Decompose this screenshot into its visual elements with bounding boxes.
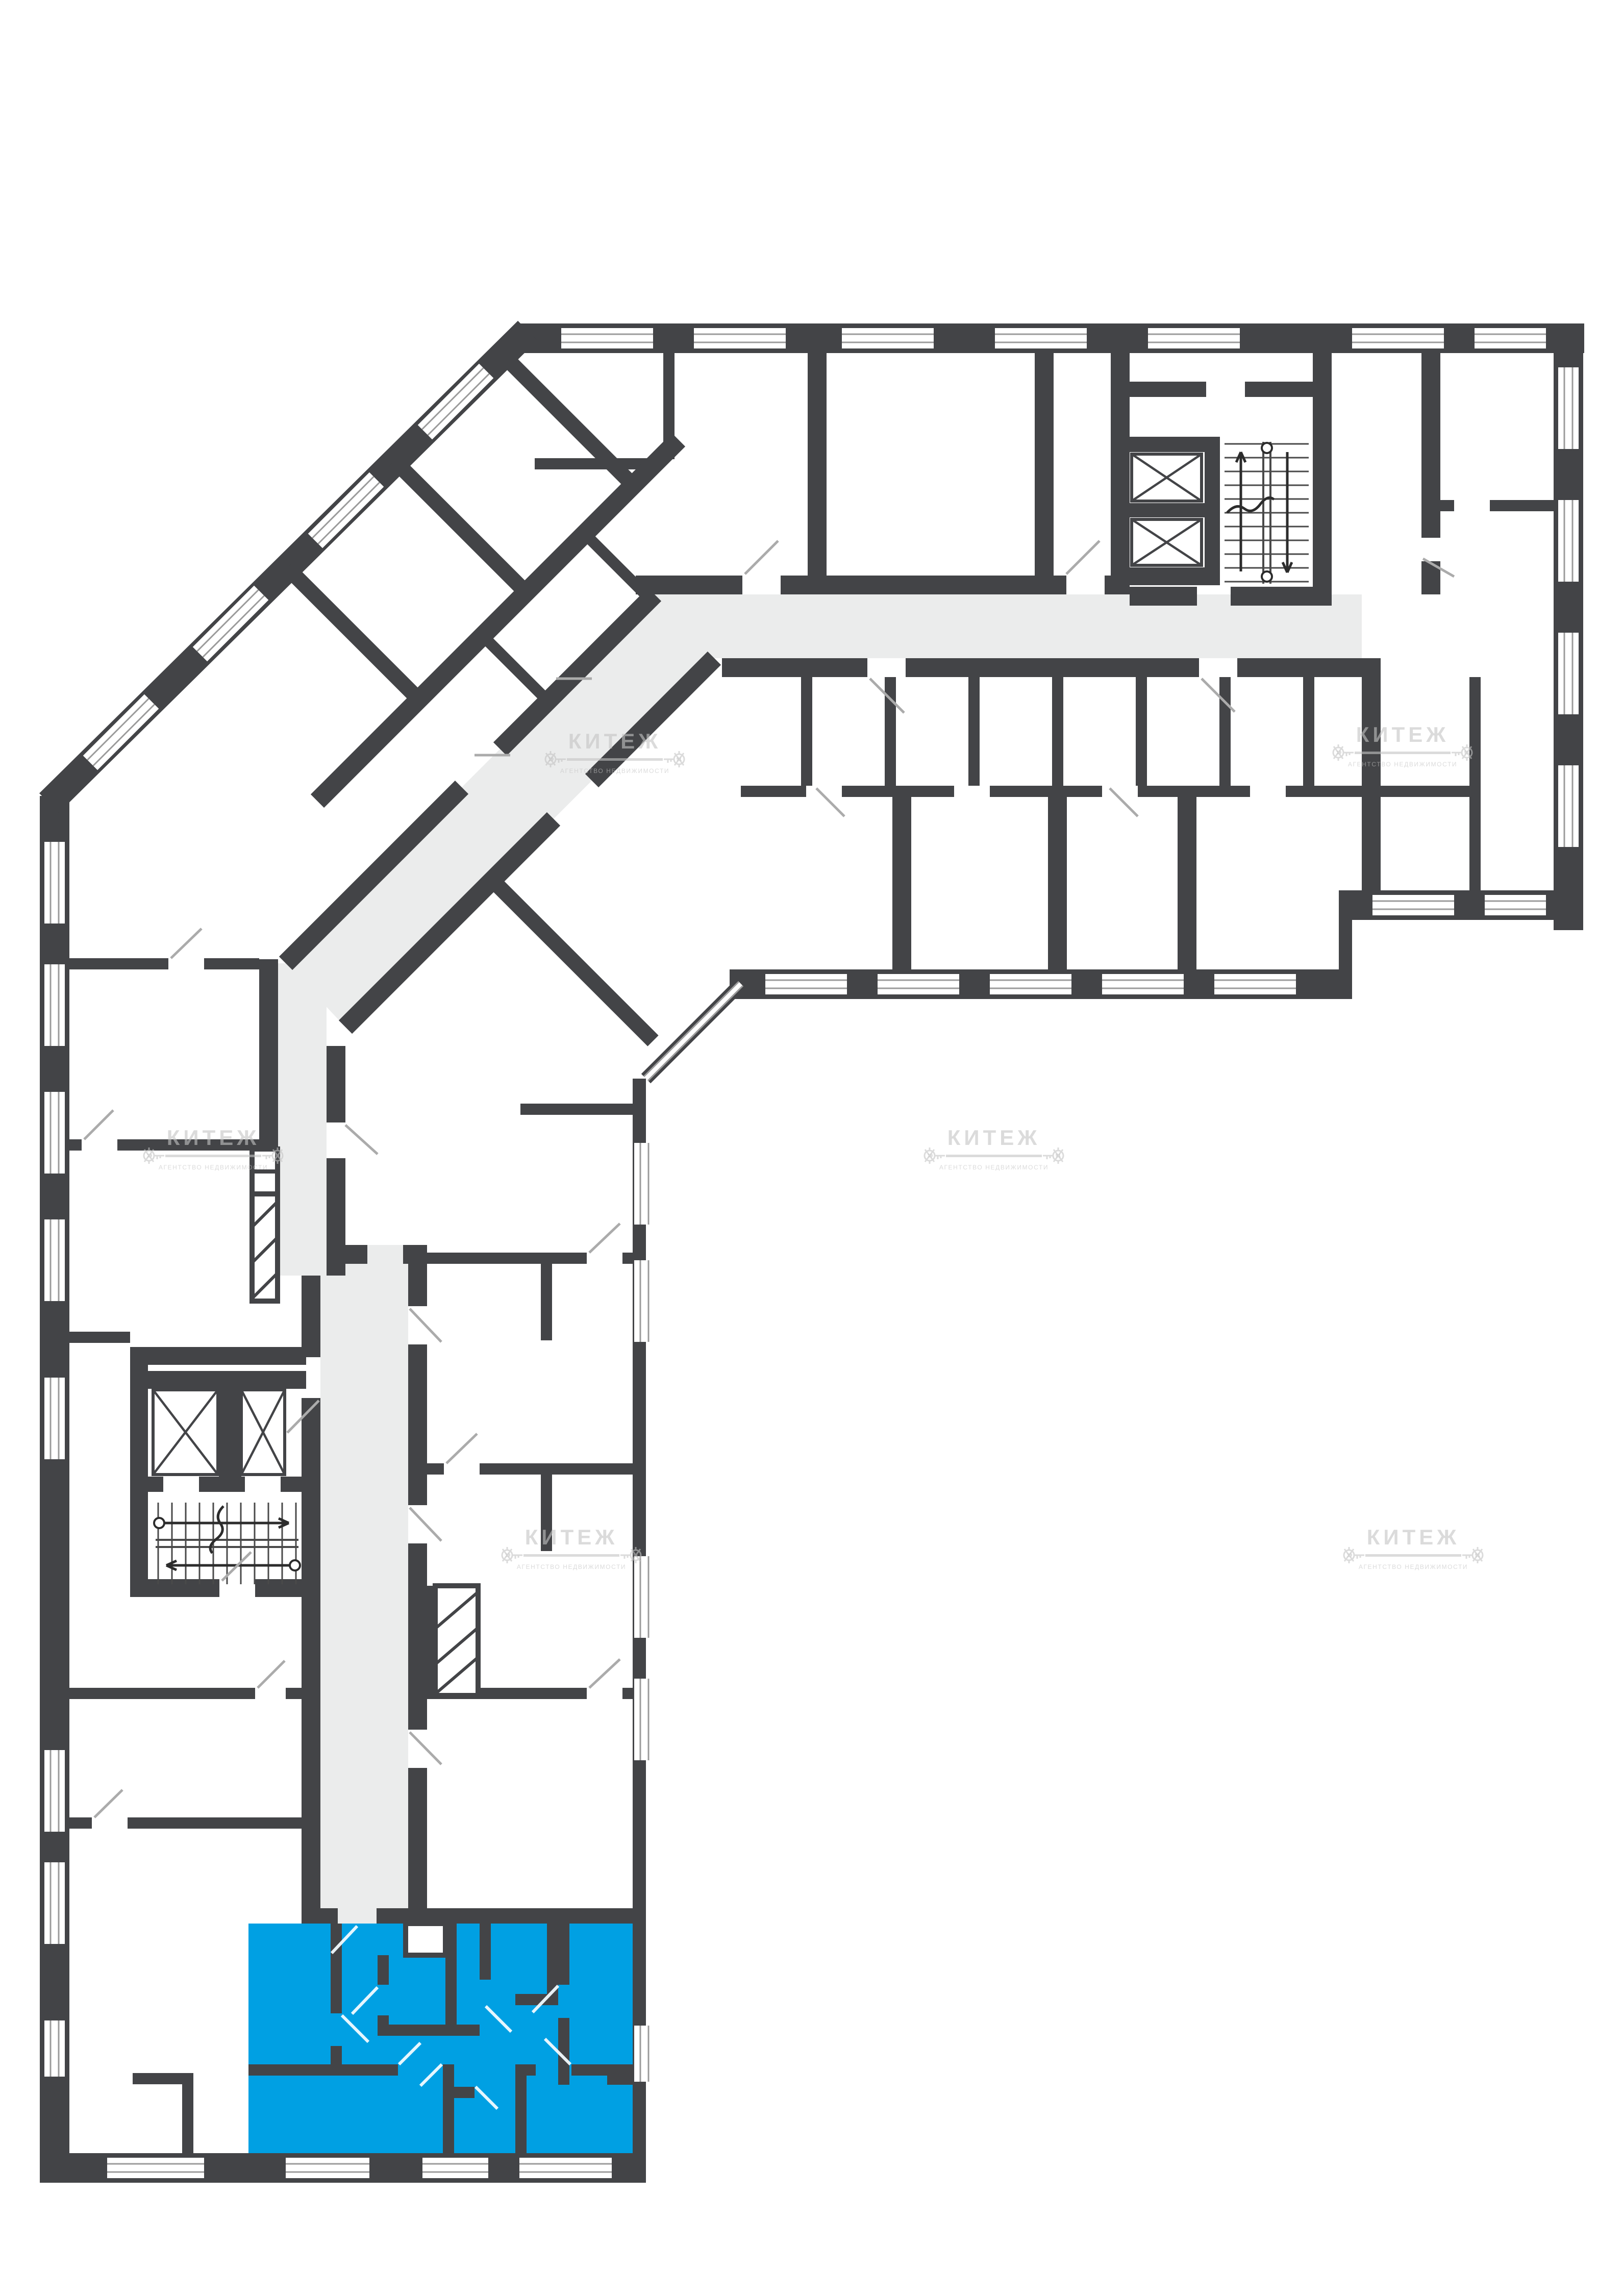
wall [571, 2064, 633, 2076]
wall [302, 1908, 338, 1924]
wall [801, 677, 812, 786]
wall [990, 786, 1102, 797]
wall [480, 1463, 633, 1475]
wall [968, 677, 980, 786]
wall [443, 2076, 454, 2166]
wall [427, 1253, 587, 1264]
window [990, 974, 1071, 994]
wall [117, 1139, 259, 1151]
window [634, 1260, 655, 1342]
wall [286, 1688, 302, 1699]
window [418, 364, 493, 439]
window [561, 328, 653, 348]
wall [1178, 797, 1196, 969]
wall [1130, 587, 1197, 606]
elevator-icon [1132, 454, 1202, 501]
elevator-icon [1132, 519, 1202, 565]
wall [219, 1389, 241, 1477]
window [634, 1556, 655, 1638]
highlighted-apartment[interactable] [248, 1924, 633, 2166]
wall [454, 2087, 475, 2098]
wall [1138, 786, 1250, 797]
wall [204, 958, 259, 969]
wall [327, 1046, 345, 1122]
wall [558, 1924, 569, 1985]
wall [255, 1579, 320, 1597]
wall [541, 1264, 552, 1340]
window [634, 1143, 655, 1225]
window [1485, 895, 1546, 915]
window [44, 2020, 65, 2077]
wall [1130, 382, 1206, 397]
wall [1469, 677, 1481, 890]
wall [408, 1344, 427, 1505]
window [1372, 895, 1454, 915]
window [1102, 974, 1184, 994]
wall [59, 1688, 255, 1699]
elevator-icon [153, 1390, 218, 1475]
window [995, 328, 1087, 348]
wall [128, 1817, 302, 1829]
wall [1219, 677, 1231, 786]
wall [403, 1245, 427, 1264]
wall [781, 576, 1066, 594]
window [193, 586, 268, 661]
window [694, 328, 786, 348]
window [44, 842, 65, 924]
wall [148, 1371, 306, 1389]
wall [722, 658, 867, 677]
wall [1339, 918, 1352, 999]
elevator-icon [241, 1390, 285, 1475]
window [286, 2158, 369, 2178]
wall [622, 1688, 633, 1699]
wall [443, 2064, 454, 2076]
floor-plan-canvas: КИТЕЖ 19 91 АГЕНТСТВО НЕДВИЖИМОСТИ КИТЕЖ [0, 0, 1623, 2296]
wall [302, 1276, 320, 1357]
wall [515, 2064, 527, 2166]
wall [842, 786, 954, 797]
wall [558, 2018, 569, 2074]
staircase-icon [154, 1503, 300, 1584]
wall [331, 2046, 342, 2064]
wall [1136, 677, 1147, 786]
window [44, 964, 65, 1046]
wall [130, 1347, 306, 1365]
wall [480, 1924, 491, 1980]
wall [327, 1158, 345, 1276]
wall [199, 1477, 245, 1492]
window [1558, 500, 1579, 582]
wall [1362, 658, 1381, 920]
window [634, 1679, 655, 1760]
wall [520, 1104, 633, 1115]
window [44, 1378, 65, 1459]
wall [541, 1475, 552, 1551]
wall [1231, 587, 1332, 606]
staircase-icon [1225, 442, 1309, 584]
window [308, 472, 384, 548]
window [1475, 328, 1546, 348]
wall [808, 323, 827, 576]
window [878, 974, 959, 994]
wall [622, 1253, 633, 1264]
wall [1126, 503, 1205, 517]
wall [1237, 658, 1381, 677]
window [1558, 367, 1579, 449]
window [634, 2026, 655, 2082]
wall [1381, 786, 1469, 797]
wall [1048, 797, 1067, 969]
wall [248, 2064, 398, 2076]
wall [1313, 323, 1332, 587]
window [1558, 765, 1579, 847]
wall [408, 1264, 427, 1306]
wall [378, 2015, 389, 2036]
wall [302, 1398, 320, 1908]
window [842, 328, 934, 348]
wall [331, 1924, 342, 2013]
window [44, 1750, 65, 1832]
wall [527, 2064, 536, 2076]
wall [892, 797, 911, 969]
wall [1490, 500, 1554, 511]
wall [558, 2074, 569, 2085]
window [765, 974, 847, 994]
floor-plan [0, 0, 1623, 2296]
wall [1245, 382, 1332, 397]
wall [1035, 323, 1054, 576]
wall [741, 786, 806, 797]
wall [182, 2084, 193, 2164]
wall [427, 1463, 444, 1475]
window [44, 1092, 65, 1174]
window [519, 2158, 612, 2178]
wall [906, 658, 1199, 677]
window [44, 1862, 65, 1944]
wall [378, 1955, 389, 1985]
wall [1440, 500, 1454, 511]
wall [133, 2073, 193, 2084]
wall [130, 1347, 148, 1597]
window [107, 2158, 204, 2178]
doors-layer [84, 541, 1454, 2109]
window [1148, 328, 1240, 348]
wall [59, 958, 168, 969]
wall [389, 2025, 480, 2036]
window [1558, 633, 1579, 714]
wall [1111, 323, 1130, 594]
wall [345, 1245, 367, 1264]
wall [408, 1543, 427, 1730]
shaft-icon [252, 1149, 278, 1301]
wall [408, 1768, 427, 1908]
window [44, 1219, 65, 1301]
wall [1303, 677, 1314, 786]
wall [59, 1332, 130, 1343]
window [1352, 328, 1444, 348]
shaft-icon [435, 1586, 478, 1695]
wall [130, 1579, 219, 1597]
apartment-shaft [406, 1924, 445, 1955]
wall [281, 1477, 304, 1492]
window [83, 694, 159, 770]
wall [1205, 437, 1220, 585]
wall [148, 1477, 163, 1492]
wall [1421, 323, 1440, 538]
wall [1052, 677, 1063, 786]
window [422, 2158, 488, 2178]
window [1214, 974, 1296, 994]
